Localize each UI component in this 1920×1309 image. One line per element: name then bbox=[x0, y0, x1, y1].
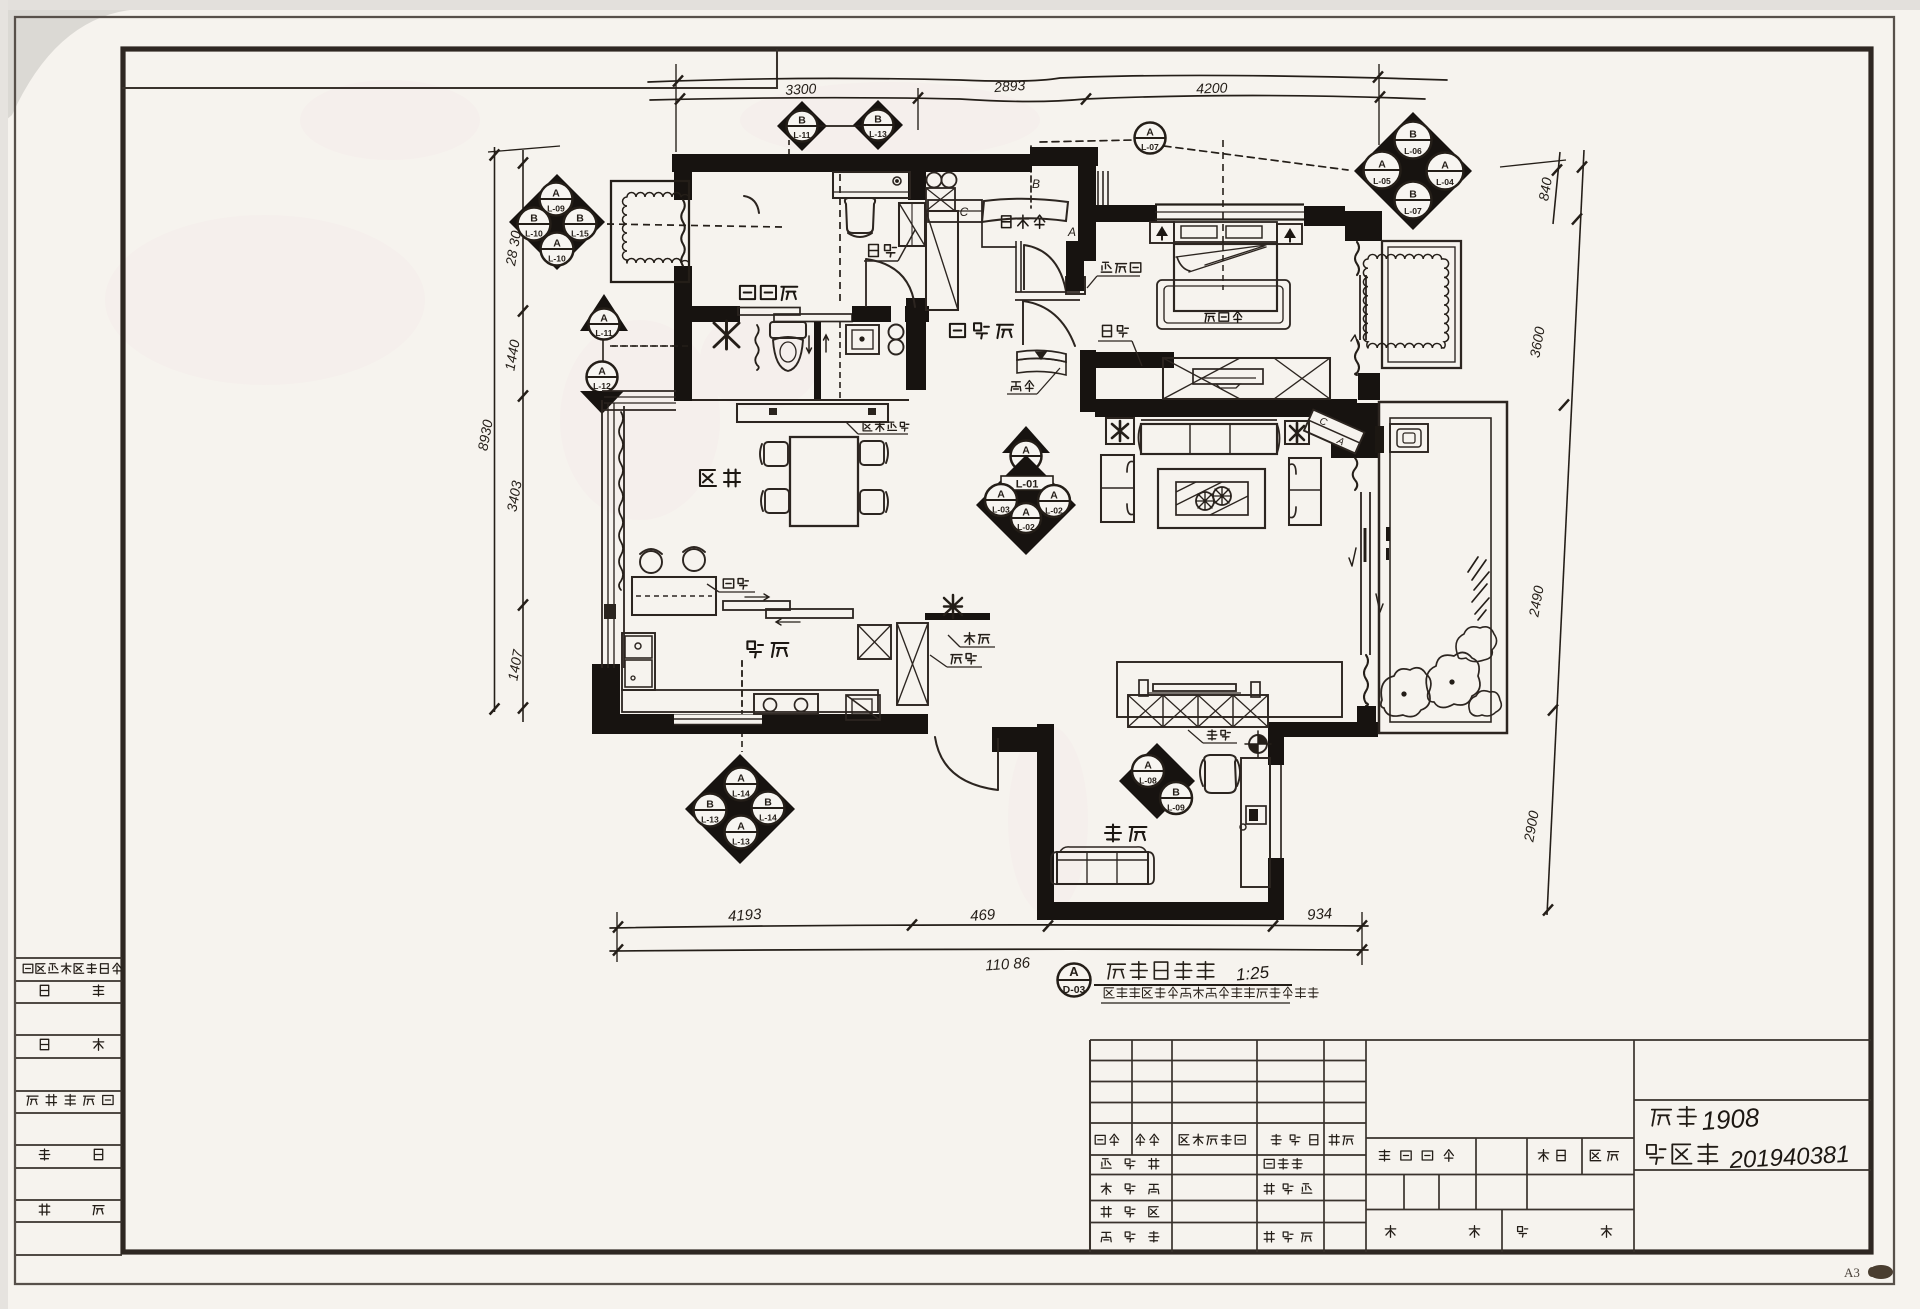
svg-text:L-07: L-07 bbox=[1141, 142, 1159, 152]
svg-text:L-05: L-05 bbox=[1373, 176, 1391, 186]
svg-text:A: A bbox=[1441, 160, 1449, 172]
svg-text:L-01: L-01 bbox=[1016, 479, 1039, 491]
svg-text:1:25: 1:25 bbox=[1235, 963, 1270, 985]
svg-text:A: A bbox=[737, 821, 745, 833]
svg-text:B: B bbox=[1032, 177, 1040, 191]
svg-text:4193: 4193 bbox=[727, 906, 762, 925]
svg-text:L-02: L-02 bbox=[1017, 522, 1035, 532]
svg-text:A: A bbox=[1022, 507, 1030, 519]
svg-text:B: B bbox=[798, 115, 806, 127]
svg-text:A: A bbox=[997, 489, 1005, 501]
svg-text:L-10: L-10 bbox=[525, 229, 543, 239]
svg-text:B: B bbox=[1172, 787, 1180, 799]
svg-text:L-10: L-10 bbox=[548, 254, 566, 264]
svg-text:D-03: D-03 bbox=[1063, 984, 1086, 996]
svg-text:2893: 2893 bbox=[993, 77, 1026, 95]
svg-text:A: A bbox=[737, 773, 745, 785]
svg-text:A: A bbox=[552, 188, 560, 200]
svg-text:L-09: L-09 bbox=[547, 204, 565, 214]
svg-text:B: B bbox=[764, 797, 772, 809]
svg-text:C: C bbox=[960, 205, 969, 219]
svg-text:L-02: L-02 bbox=[1045, 505, 1063, 515]
svg-text:L-09: L-09 bbox=[1167, 802, 1185, 812]
svg-text:L-13: L-13 bbox=[701, 815, 719, 825]
svg-text:A: A bbox=[1069, 964, 1079, 979]
svg-text:A: A bbox=[1144, 760, 1152, 772]
svg-text:L-13: L-13 bbox=[869, 129, 887, 139]
svg-text:B: B bbox=[576, 213, 584, 225]
svg-text:3300: 3300 bbox=[785, 80, 817, 98]
svg-text:4200: 4200 bbox=[1196, 79, 1228, 96]
svg-text:A3: A3 bbox=[1844, 1265, 1860, 1280]
svg-text:L-12: L-12 bbox=[593, 381, 611, 391]
svg-text:934: 934 bbox=[1307, 905, 1333, 924]
svg-text:L-14: L-14 bbox=[732, 789, 750, 799]
svg-text:A: A bbox=[1050, 490, 1058, 502]
svg-text:L-07: L-07 bbox=[1404, 206, 1422, 216]
svg-text:B: B bbox=[874, 114, 882, 126]
svg-text:L-06: L-06 bbox=[1404, 146, 1422, 156]
svg-text:L-08: L-08 bbox=[1139, 775, 1157, 785]
svg-text:L-03: L-03 bbox=[992, 504, 1010, 514]
svg-text:A: A bbox=[600, 313, 608, 325]
svg-text:L-04: L-04 bbox=[1436, 177, 1454, 187]
svg-text:B: B bbox=[1409, 189, 1417, 201]
svg-text:B: B bbox=[706, 799, 714, 811]
svg-text:469: 469 bbox=[970, 906, 997, 925]
svg-text:A: A bbox=[1146, 127, 1154, 139]
svg-text:L-11: L-11 bbox=[793, 130, 810, 140]
svg-text:A: A bbox=[553, 238, 561, 250]
svg-text:A: A bbox=[1067, 225, 1076, 239]
svg-text:A: A bbox=[1378, 159, 1386, 171]
svg-text:B: B bbox=[1409, 129, 1417, 141]
svg-text:A: A bbox=[1022, 445, 1030, 457]
svg-text:1908: 1908 bbox=[1700, 1102, 1760, 1136]
svg-text:L-11: L-11 bbox=[595, 328, 612, 338]
svg-text:110 86: 110 86 bbox=[985, 954, 1031, 974]
svg-text:B: B bbox=[530, 213, 538, 225]
svg-text:L-13: L-13 bbox=[732, 837, 750, 847]
svg-text:A: A bbox=[598, 366, 606, 378]
svg-text:L-14: L-14 bbox=[759, 813, 777, 823]
svg-text:L-15: L-15 bbox=[571, 229, 589, 239]
